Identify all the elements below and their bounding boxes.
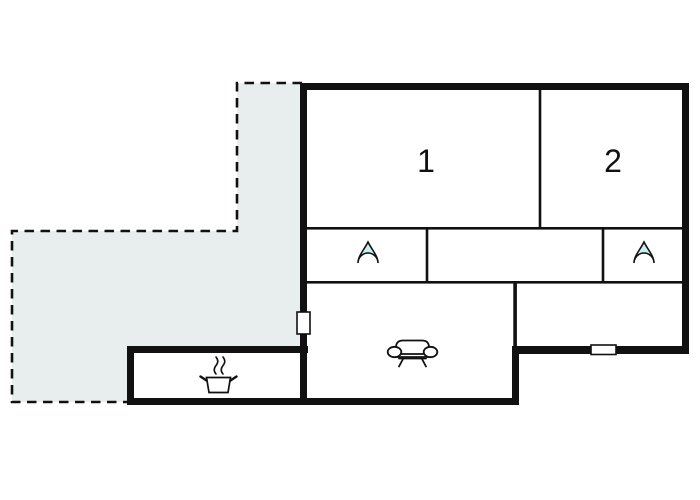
interior-wall-room1-room2 — [539, 90, 542, 227]
room-lower-right-area — [517, 283, 682, 346]
interior-wall-bath-left — [426, 228, 429, 282]
door-marker-bottom-right — [591, 345, 616, 355]
room-1-label: 1 — [417, 143, 435, 179]
exterior-wall-left — [300, 83, 307, 405]
interior-wall-row-bottom — [305, 281, 684, 284]
bathroom-right-area — [604, 229, 682, 281]
bathroom-left-area — [307, 229, 426, 281]
exterior-wall-living-bottom — [127, 398, 519, 405]
exterior-wall-right — [682, 83, 689, 354]
exterior-wall-top — [300, 83, 689, 90]
exterior-wall-living-right — [512, 346, 519, 405]
kitchen-wall-top — [127, 346, 308, 353]
room-2-label: 2 — [604, 143, 622, 179]
hallway-area — [428, 229, 602, 281]
water-drop-icon — [634, 242, 654, 263]
kitchen-wall-left — [127, 346, 134, 405]
interior-wall-living-divider — [513, 283, 517, 347]
interior-wall-row-top — [305, 227, 684, 230]
floor-plan: 1 2 — [0, 0, 700, 500]
stove-pot-icon — [201, 357, 237, 393]
water-icons — [358, 242, 654, 263]
floor-plan-canvas: 1 2 — [0, 0, 700, 500]
sofa-icon — [388, 341, 438, 367]
door-marker-left-wall — [297, 312, 310, 334]
water-drop-icon — [358, 242, 378, 263]
terrace-area — [12, 83, 302, 402]
interior-wall-bath-right — [602, 228, 605, 282]
